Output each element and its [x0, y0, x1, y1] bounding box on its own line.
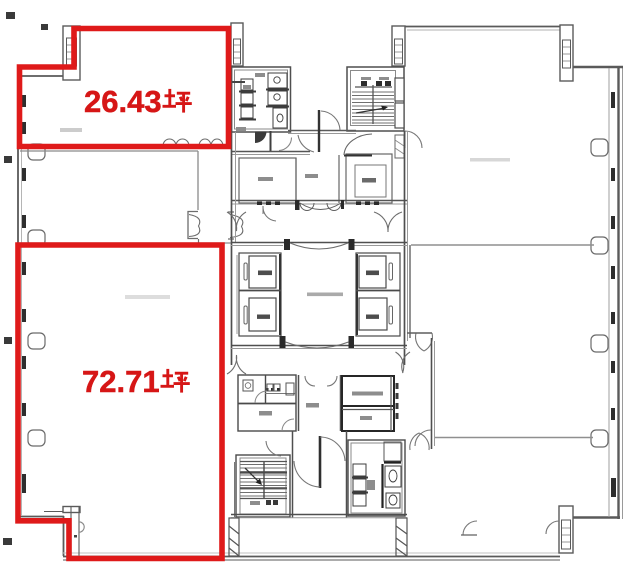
svg-text:26.43: 26.43 — [84, 84, 162, 119]
svg-text:72.71: 72.71 — [82, 364, 160, 399]
